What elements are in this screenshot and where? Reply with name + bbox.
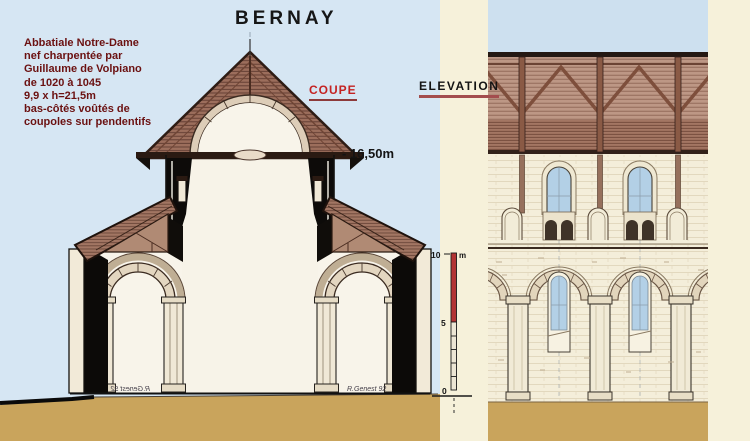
height-marker-label: - 16,50m bbox=[342, 146, 394, 161]
scale-label-0: 0 bbox=[442, 386, 447, 396]
signature-left: R.Genest 92 bbox=[111, 386, 150, 393]
scale-bar: 10 m 5 0 bbox=[430, 244, 475, 430]
info-line: bas-côtés voûtés de bbox=[24, 103, 151, 116]
bernay-abbey-diagram: R.Genest 92 R.Genest 92 10 m 5 0 bbox=[0, 0, 750, 441]
coupe-section-label: COUPE bbox=[309, 83, 357, 101]
elevation-section-label: ELEVATION bbox=[419, 79, 499, 98]
info-line: Guillaume de Volpiano bbox=[24, 63, 151, 76]
page-title: BERNAY bbox=[235, 8, 338, 30]
scale-label-5: 5 bbox=[441, 318, 446, 328]
info-block: Abbatiale Notre-Dame nef charpentée par … bbox=[24, 37, 151, 129]
info-line: 9,9 x h=21,5m bbox=[24, 90, 151, 103]
scale-label-m: m bbox=[459, 251, 466, 260]
scale-label-10: 10 bbox=[431, 250, 441, 260]
signature-right: R.Genest 92 bbox=[347, 386, 386, 393]
info-line: nef charpentée par bbox=[24, 50, 151, 63]
info-line: coupoles sur pendentifs bbox=[24, 116, 151, 129]
info-line: Abbatiale Notre-Dame bbox=[24, 37, 151, 50]
right-cream-strip bbox=[708, 0, 750, 441]
info-line: de 1020 à 1045 bbox=[24, 77, 151, 90]
elevation-drawing bbox=[488, 0, 708, 441]
